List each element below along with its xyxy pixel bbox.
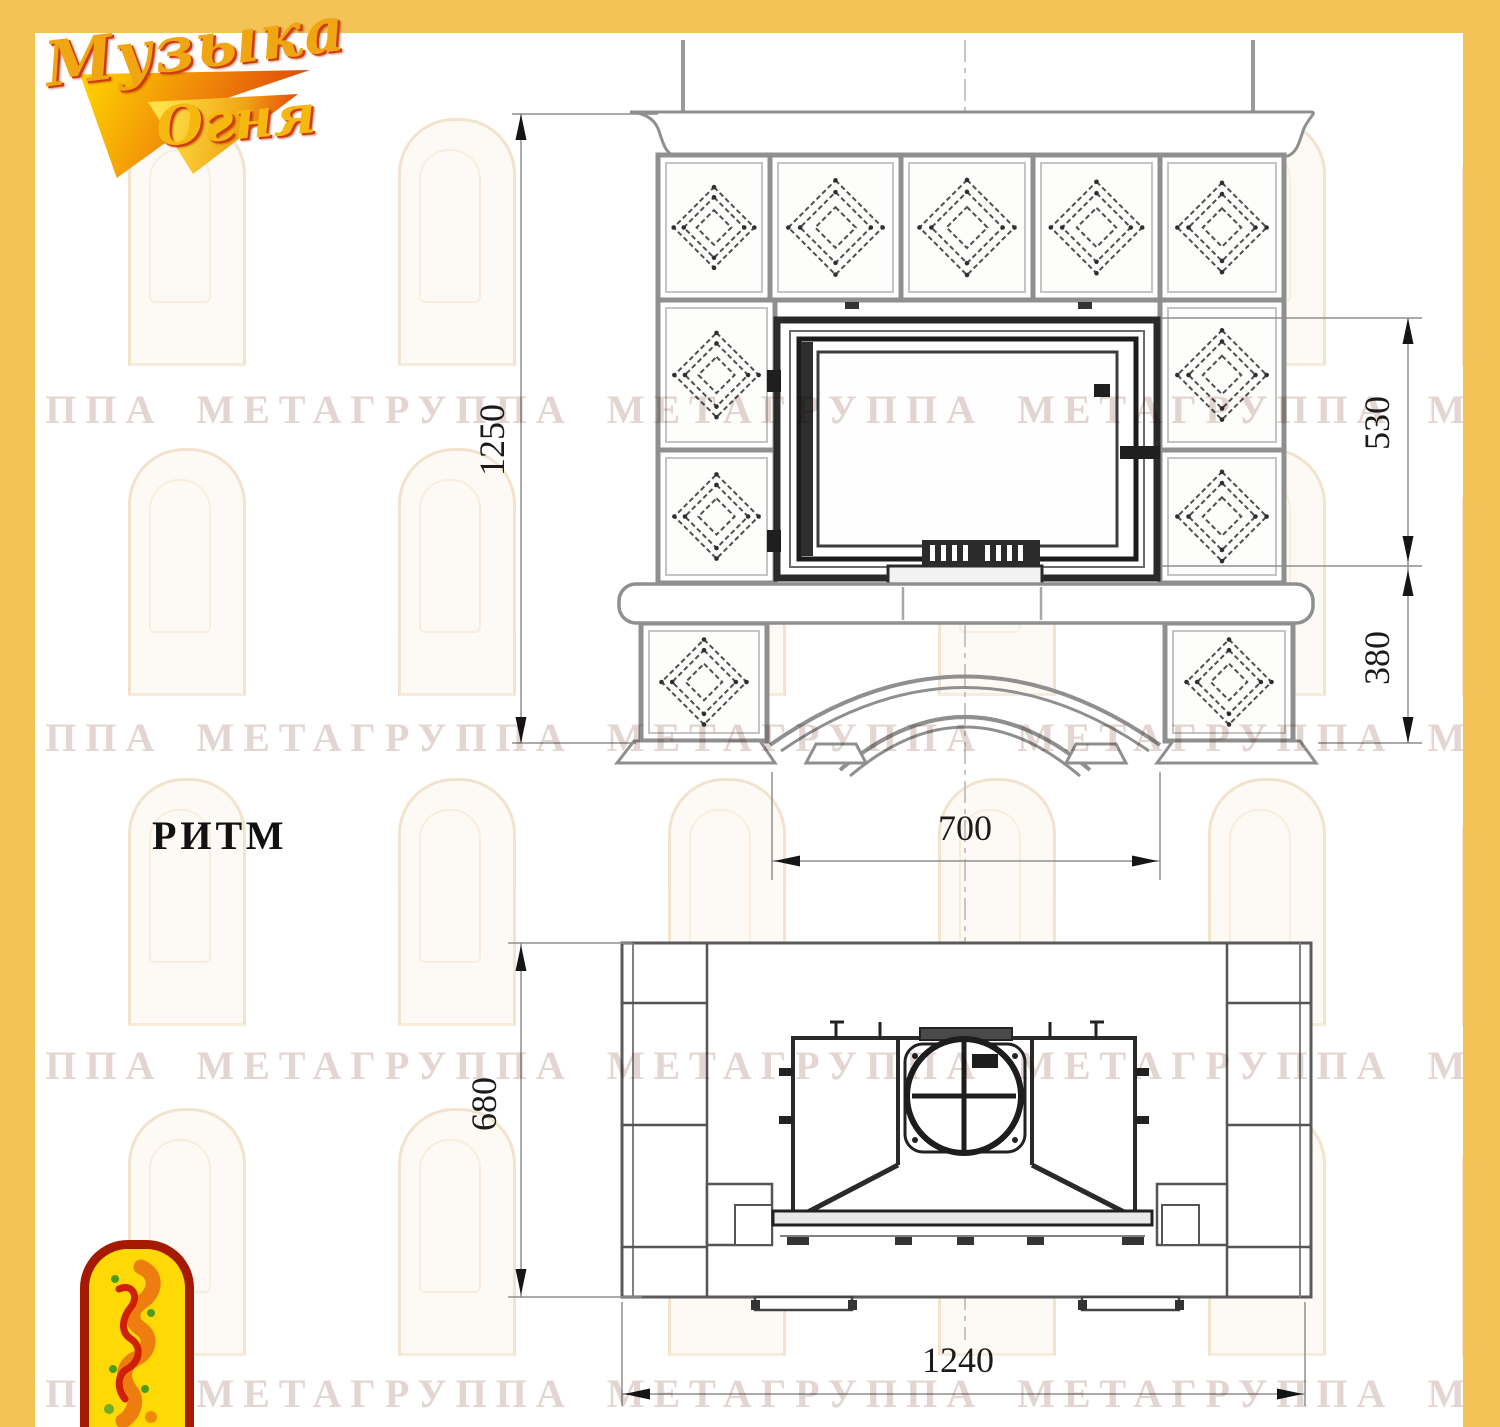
dimension-arrow [516,114,527,140]
door-hinge-bar [801,342,813,556]
dimension-arrow [774,856,800,867]
brand-logo: Музыка Огня [28,2,318,177]
dim-base-zone: 380 [1357,593,1397,723]
firebox-front-bar [773,1211,1152,1225]
model-title: РИТМ [152,812,287,859]
dim-firebox-zone: 530 [1357,358,1397,488]
drawing-sheet: ГРУППА МЕТАГРУППА МЕТАГРУППА МЕТАГРУППА … [0,0,1500,1427]
diamond-tile [658,450,775,583]
diamond-tile [901,155,1033,300]
diamond-tile [1160,155,1284,300]
frame-bar-right [1463,0,1500,1427]
diamond-tile [658,155,770,300]
dimension-arrow [1403,318,1414,344]
ash-tray [888,566,1042,584]
firebird-figure-icon [89,1249,185,1427]
dim-firebox-width: 700 [900,808,1030,848]
cornice [630,112,1313,156]
dimension-arrow [516,945,527,971]
diamond-tile [1033,155,1160,300]
dim-depth: 680 [464,1039,504,1169]
brand-word-2: Огня [154,81,319,159]
hinge-bottom [767,530,781,552]
frame-bar-left [0,0,35,1427]
door-handle [1120,446,1160,459]
diamond-tile [770,155,901,300]
watermark-text: ГРУППА МЕТАГРУППА МЕТАГРУППА МЕТАГРУППА … [0,386,1500,430]
watermark-text: ГРУППА МЕТАГРУППА МЕТАГРУППА МЕТАГРУППА … [0,714,1500,758]
dim-overall-height: 1250 [472,375,512,505]
dim-overall-width: 1240 [893,1340,1023,1380]
door-glass [818,352,1117,546]
watermark-text: ГРУППА МЕТАГРУППА МЕТАГРУППА МЕТАГРУППА … [0,1042,1500,1086]
plan-view [622,943,1311,1310]
dimension-arrow [1132,856,1158,867]
watermark-text: ГРУППА МЕТАГРУППА МЕТАГРУППА МЕТАГРУППА … [0,1370,1500,1414]
firebox-door [767,320,1160,584]
dimension-arrow [1403,570,1414,596]
dimension-arrow [516,1269,527,1295]
mantel-shelf [619,584,1313,623]
dimension-arrow [1403,536,1414,562]
diamond-tile [1160,450,1284,583]
firebird-emblem [80,1240,194,1427]
